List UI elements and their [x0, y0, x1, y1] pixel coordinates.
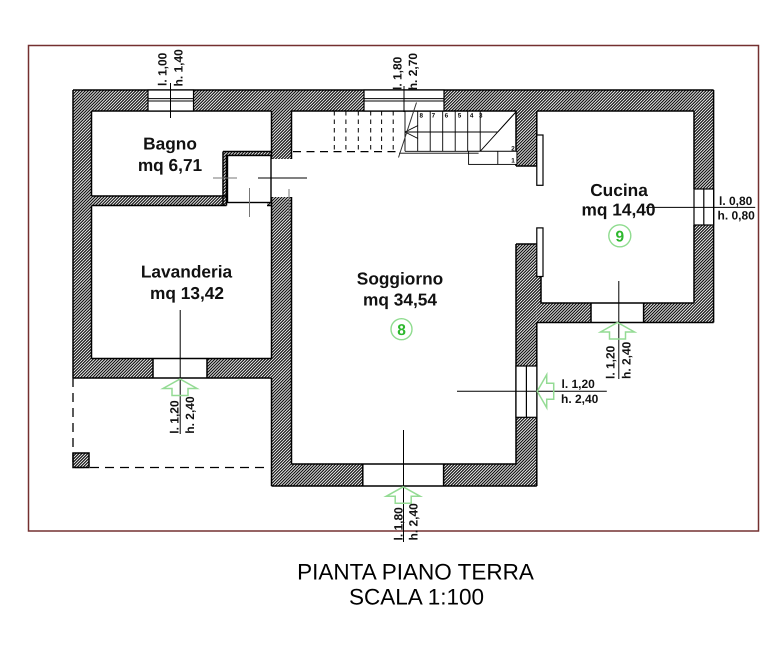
svg-text:l. 1,80: l. 1,80 [390, 56, 404, 90]
svg-text:8: 8 [397, 322, 406, 339]
svg-text:Soggiorno: Soggiorno [357, 269, 443, 289]
svg-text:h. 2,40: h. 2,40 [561, 392, 599, 406]
svg-text:h. 2,70: h. 2,70 [406, 53, 420, 91]
svg-text:1: 1 [511, 158, 515, 165]
svg-text:h. 1,40: h. 1,40 [172, 49, 186, 87]
svg-text:mq 6,71: mq 6,71 [138, 155, 203, 175]
svg-text:9: 9 [615, 229, 624, 246]
svg-text:5: 5 [458, 113, 462, 120]
svg-text:h. 2,40: h. 2,40 [620, 341, 634, 379]
svg-text:Lavanderia: Lavanderia [141, 262, 233, 282]
svg-text:mq 34,54: mq 34,54 [363, 290, 437, 310]
svg-text:l. 1,80: l. 1,80 [392, 507, 406, 541]
svg-text:6: 6 [445, 113, 449, 120]
svg-text:mq 13,42: mq 13,42 [150, 283, 224, 303]
svg-text:4: 4 [470, 113, 474, 120]
svg-text:7: 7 [432, 113, 436, 120]
svg-text:mq 14,40: mq 14,40 [582, 200, 656, 220]
svg-text:PIANTA PIANO TERRA: PIANTA PIANO TERRA [297, 560, 534, 585]
svg-text:h. 2,40: h. 2,40 [407, 503, 421, 541]
svg-text:Bagno: Bagno [143, 134, 197, 154]
svg-text:l. 1,20: l. 1,20 [562, 377, 596, 391]
svg-text:2: 2 [511, 146, 515, 153]
svg-text:l. 1,00: l. 1,00 [156, 52, 170, 86]
svg-text:l. 1,20: l. 1,20 [168, 400, 182, 434]
svg-text:l. 1,20: l. 1,20 [604, 345, 618, 379]
svg-text:l. 0,80: l. 0,80 [719, 194, 753, 208]
svg-text:h. 0,80: h. 0,80 [718, 209, 756, 223]
svg-text:SCALA 1:100: SCALA 1:100 [349, 585, 484, 610]
svg-text:Cucina: Cucina [590, 180, 648, 200]
svg-text:3: 3 [479, 113, 483, 120]
svg-text:8: 8 [420, 113, 424, 120]
svg-text:h. 2,40: h. 2,40 [183, 396, 197, 434]
